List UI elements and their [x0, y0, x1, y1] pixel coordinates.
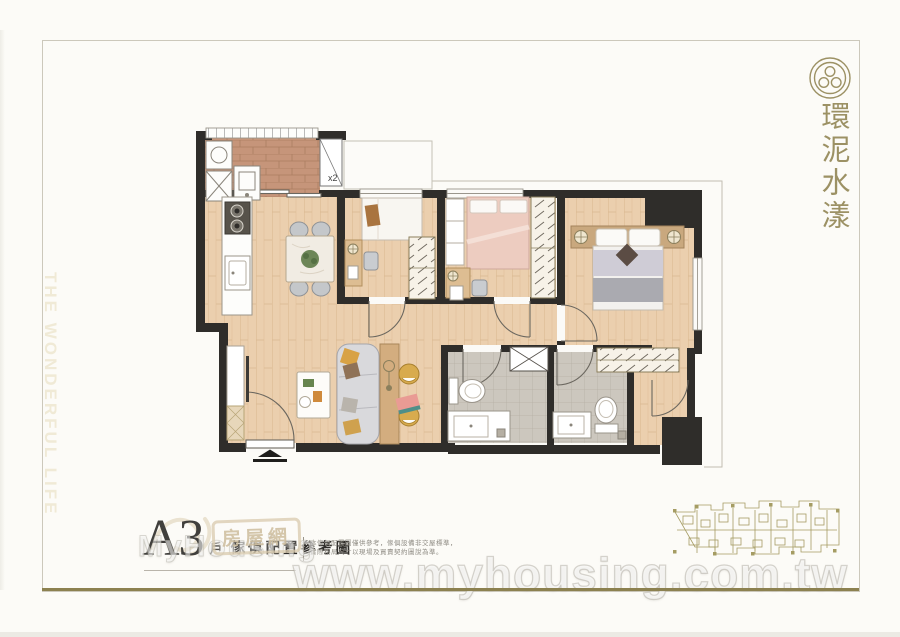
- brochure-page: x2: [0, 0, 900, 637]
- ac-ledge: [344, 141, 432, 189]
- toilet-tank: [449, 378, 458, 404]
- table-plant: [301, 250, 319, 268]
- floor-drain: [618, 431, 626, 439]
- console-table: [380, 344, 399, 444]
- bottom-gold-rule: [42, 588, 859, 591]
- balcony-railing: [206, 128, 318, 138]
- wardrobe: [531, 197, 555, 298]
- sofa-pillow: [341, 397, 358, 413]
- desk-chair: [364, 252, 378, 270]
- stool: [472, 280, 487, 296]
- brand-title-vertical: 環泥水漾: [812, 101, 854, 246]
- shoe-cabinet: [227, 406, 244, 440]
- tv: [246, 356, 249, 402]
- kitchen: [222, 197, 252, 315]
- pillow: [596, 229, 627, 246]
- structural-column: [662, 417, 702, 465]
- brand-emblem-icon: [810, 58, 850, 98]
- toilet-tank: [595, 424, 618, 433]
- side-slogan-text: THE WONDERFUL LIFE: [40, 272, 60, 602]
- shelf: [446, 199, 464, 265]
- tv-cabinet: [227, 346, 244, 410]
- linen-closet: [510, 347, 548, 371]
- watermark-stamp: 房屋網: [211, 517, 301, 555]
- cabinet-quantity-label: x2: [328, 173, 338, 183]
- scan-edge-bottom: [0, 632, 900, 637]
- unit-underline: [144, 570, 296, 571]
- storage-cabinet: x2: [320, 139, 342, 186]
- watermark-site-url: www.myhousing.com.tw: [293, 547, 848, 601]
- pillow: [629, 229, 660, 246]
- floor-drain: [497, 429, 505, 437]
